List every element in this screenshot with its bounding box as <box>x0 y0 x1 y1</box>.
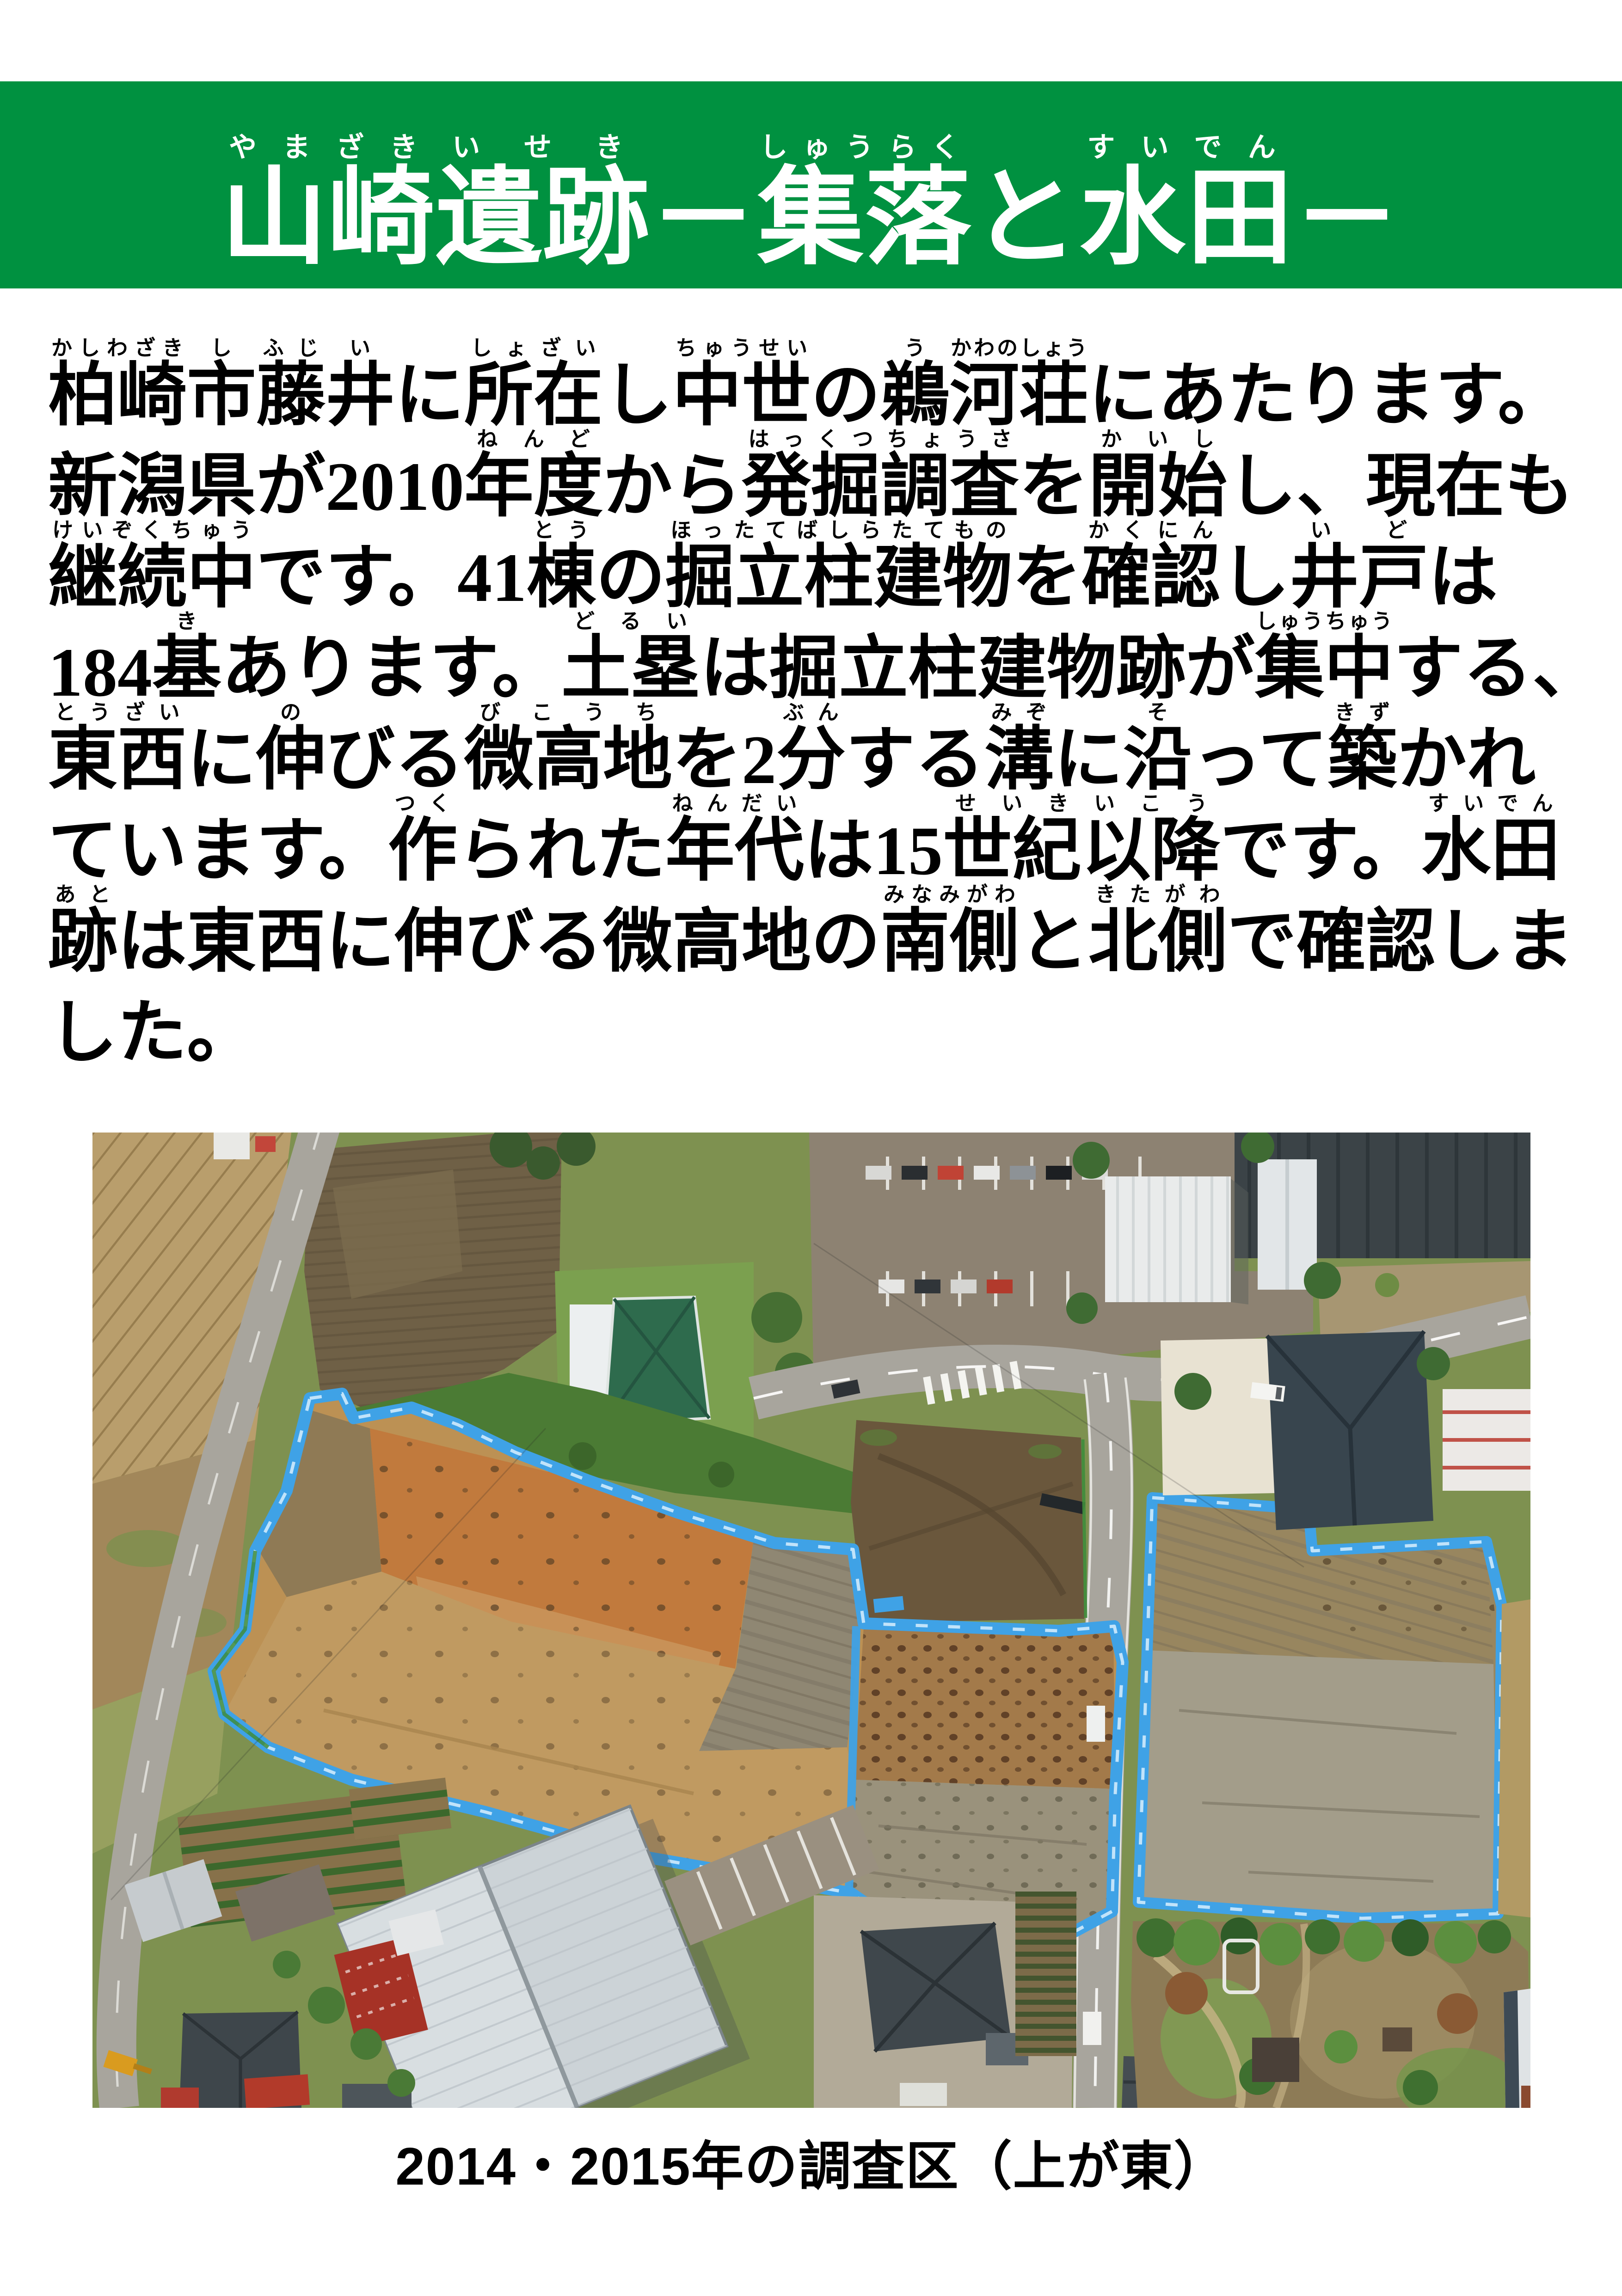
body-text-line: 継続中けいぞくちゅうです。41棟とうの掘立柱建物ほったてばしらたてものを確認かく… <box>48 530 1588 621</box>
body-text-line: 184基きあります。土塁どるいは掘立柱建物跡が集中しゅうちゅうする、 <box>48 621 1588 712</box>
excavation-area-east <box>1138 1498 1502 1918</box>
title-banner: 山崎やまざき遺跡いせき－集落しゅうらくと水田すいでん－ <box>0 81 1622 288</box>
body-paragraph: 柏崎かしわざき市し藤ふじ井いに所在しょざいし中世ちゅうせいの鵜う河荘かわのしょう… <box>48 348 1588 1077</box>
aerial-photo <box>92 1133 1530 2108</box>
body-text-line: 新潟県が2010年度ねんどから発掘調査はっくつちょうさを開始かいしし、現在も <box>48 439 1588 530</box>
page-title: 山崎やまざき遺跡いせき－集落しゅうらくと水田すいでん－ <box>221 132 1401 288</box>
body-text-line: ています。作つくられた年代ねんだいは15世紀せいき以降いこうです。水田すいでん <box>48 803 1588 894</box>
pyramid-roof-house <box>861 1923 1011 2051</box>
park-pavilion <box>1252 2038 1299 2082</box>
aerial-photo-figure: 2014・2015年の調査区（上が東） <box>92 1133 1530 2200</box>
body-text-line: 東西とうざいに伸のびる微高地びこうちを2分ぶんする溝みぞに沿そって築きずかれ <box>48 712 1588 803</box>
body-text-line: 跡あとは東西に伸びる微高地の南側みなみがわと北側きたがわで確認しま <box>48 894 1588 986</box>
body-text-line: した。 <box>48 986 1588 1077</box>
body-text-line: 柏崎かしわざき市し藤ふじ井いに所在しょざいし中世ちゅうせいの鵜う河荘かわのしょう… <box>48 348 1588 439</box>
photo-caption: 2014・2015年の調査区（上が東） <box>92 2124 1530 2200</box>
flyer-page: 山崎やまざき遺跡いせき－集落しゅうらくと水田すいでん－ 柏崎かしわざき市し藤ふじ… <box>0 0 1622 2296</box>
staging-dirt-lot <box>851 1420 1086 1623</box>
east-margin <box>1498 1599 1530 1917</box>
park-bottom-right <box>1131 1917 1530 2108</box>
